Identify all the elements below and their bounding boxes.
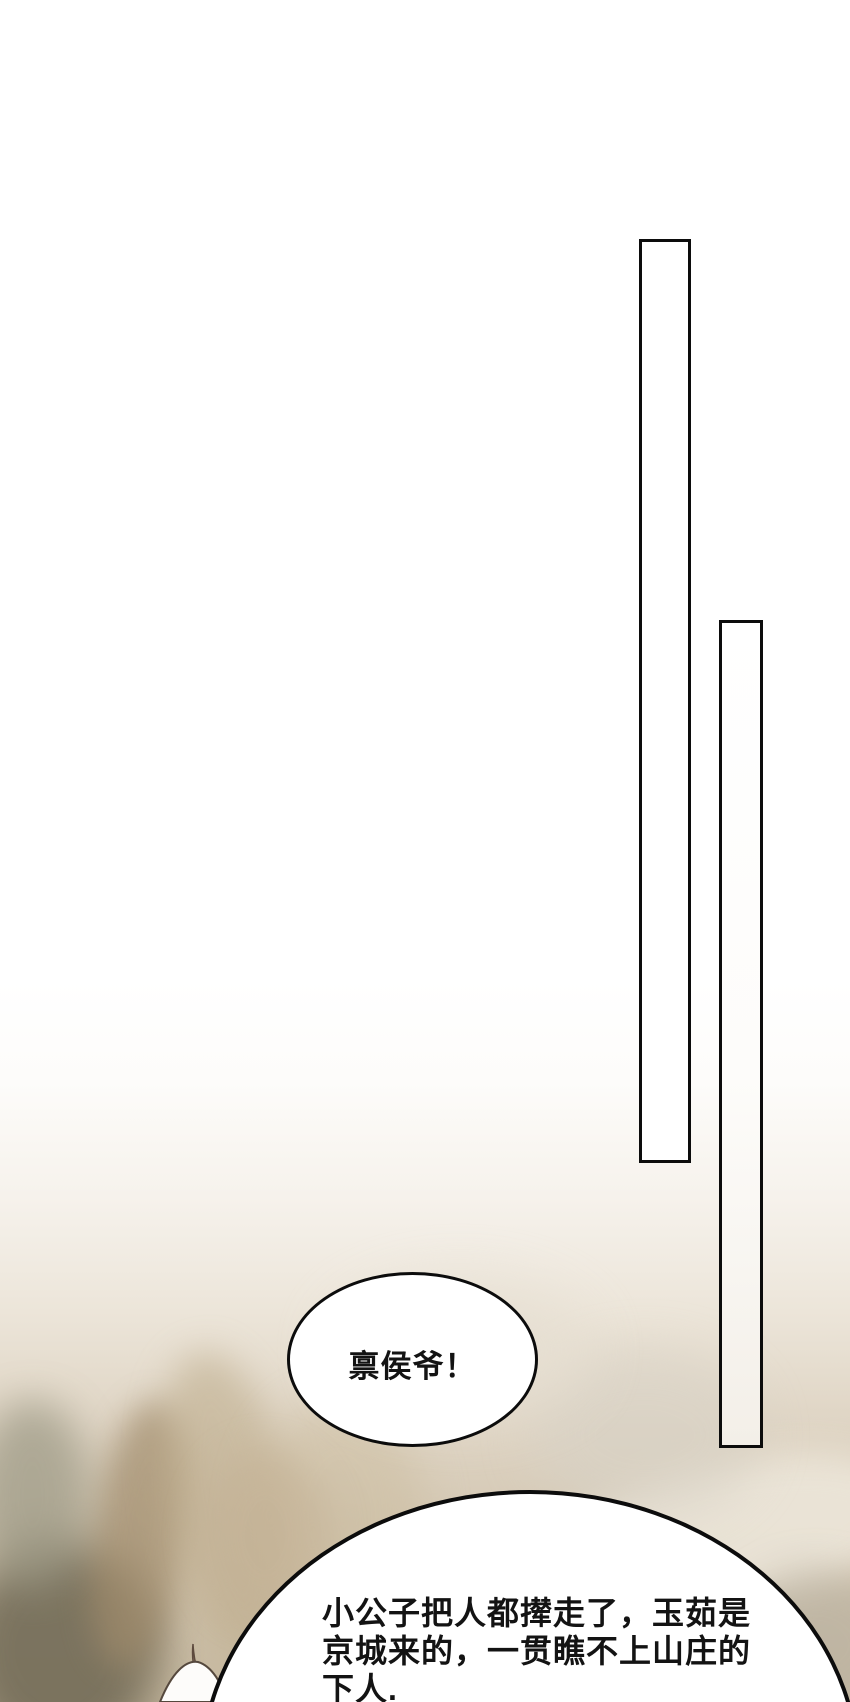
panel-bar-short [719,620,763,1448]
speech-text-line: 小公子把人都撵走了，玉茹是 [322,1594,782,1632]
speech-text-large: 小公子把人都撵走了，玉茹是 京城来的，一贯瞧不上山庄的 下人. [322,1594,782,1702]
speech-text-line: 下人. [322,1670,782,1702]
comic-page: 禀侯爷！ 小公子把人都撵走了，玉茹是 京城来的，一贯瞧不上山庄的 下人. [0,0,850,1702]
speech-text-small: 禀侯爷！ [349,1333,477,1386]
speech-bubble-small: 禀侯爷！ [287,1272,538,1447]
speech-text-line: 京城来的，一贯瞧不上山庄的 [322,1632,782,1670]
panel-bar-tall [639,239,691,1163]
